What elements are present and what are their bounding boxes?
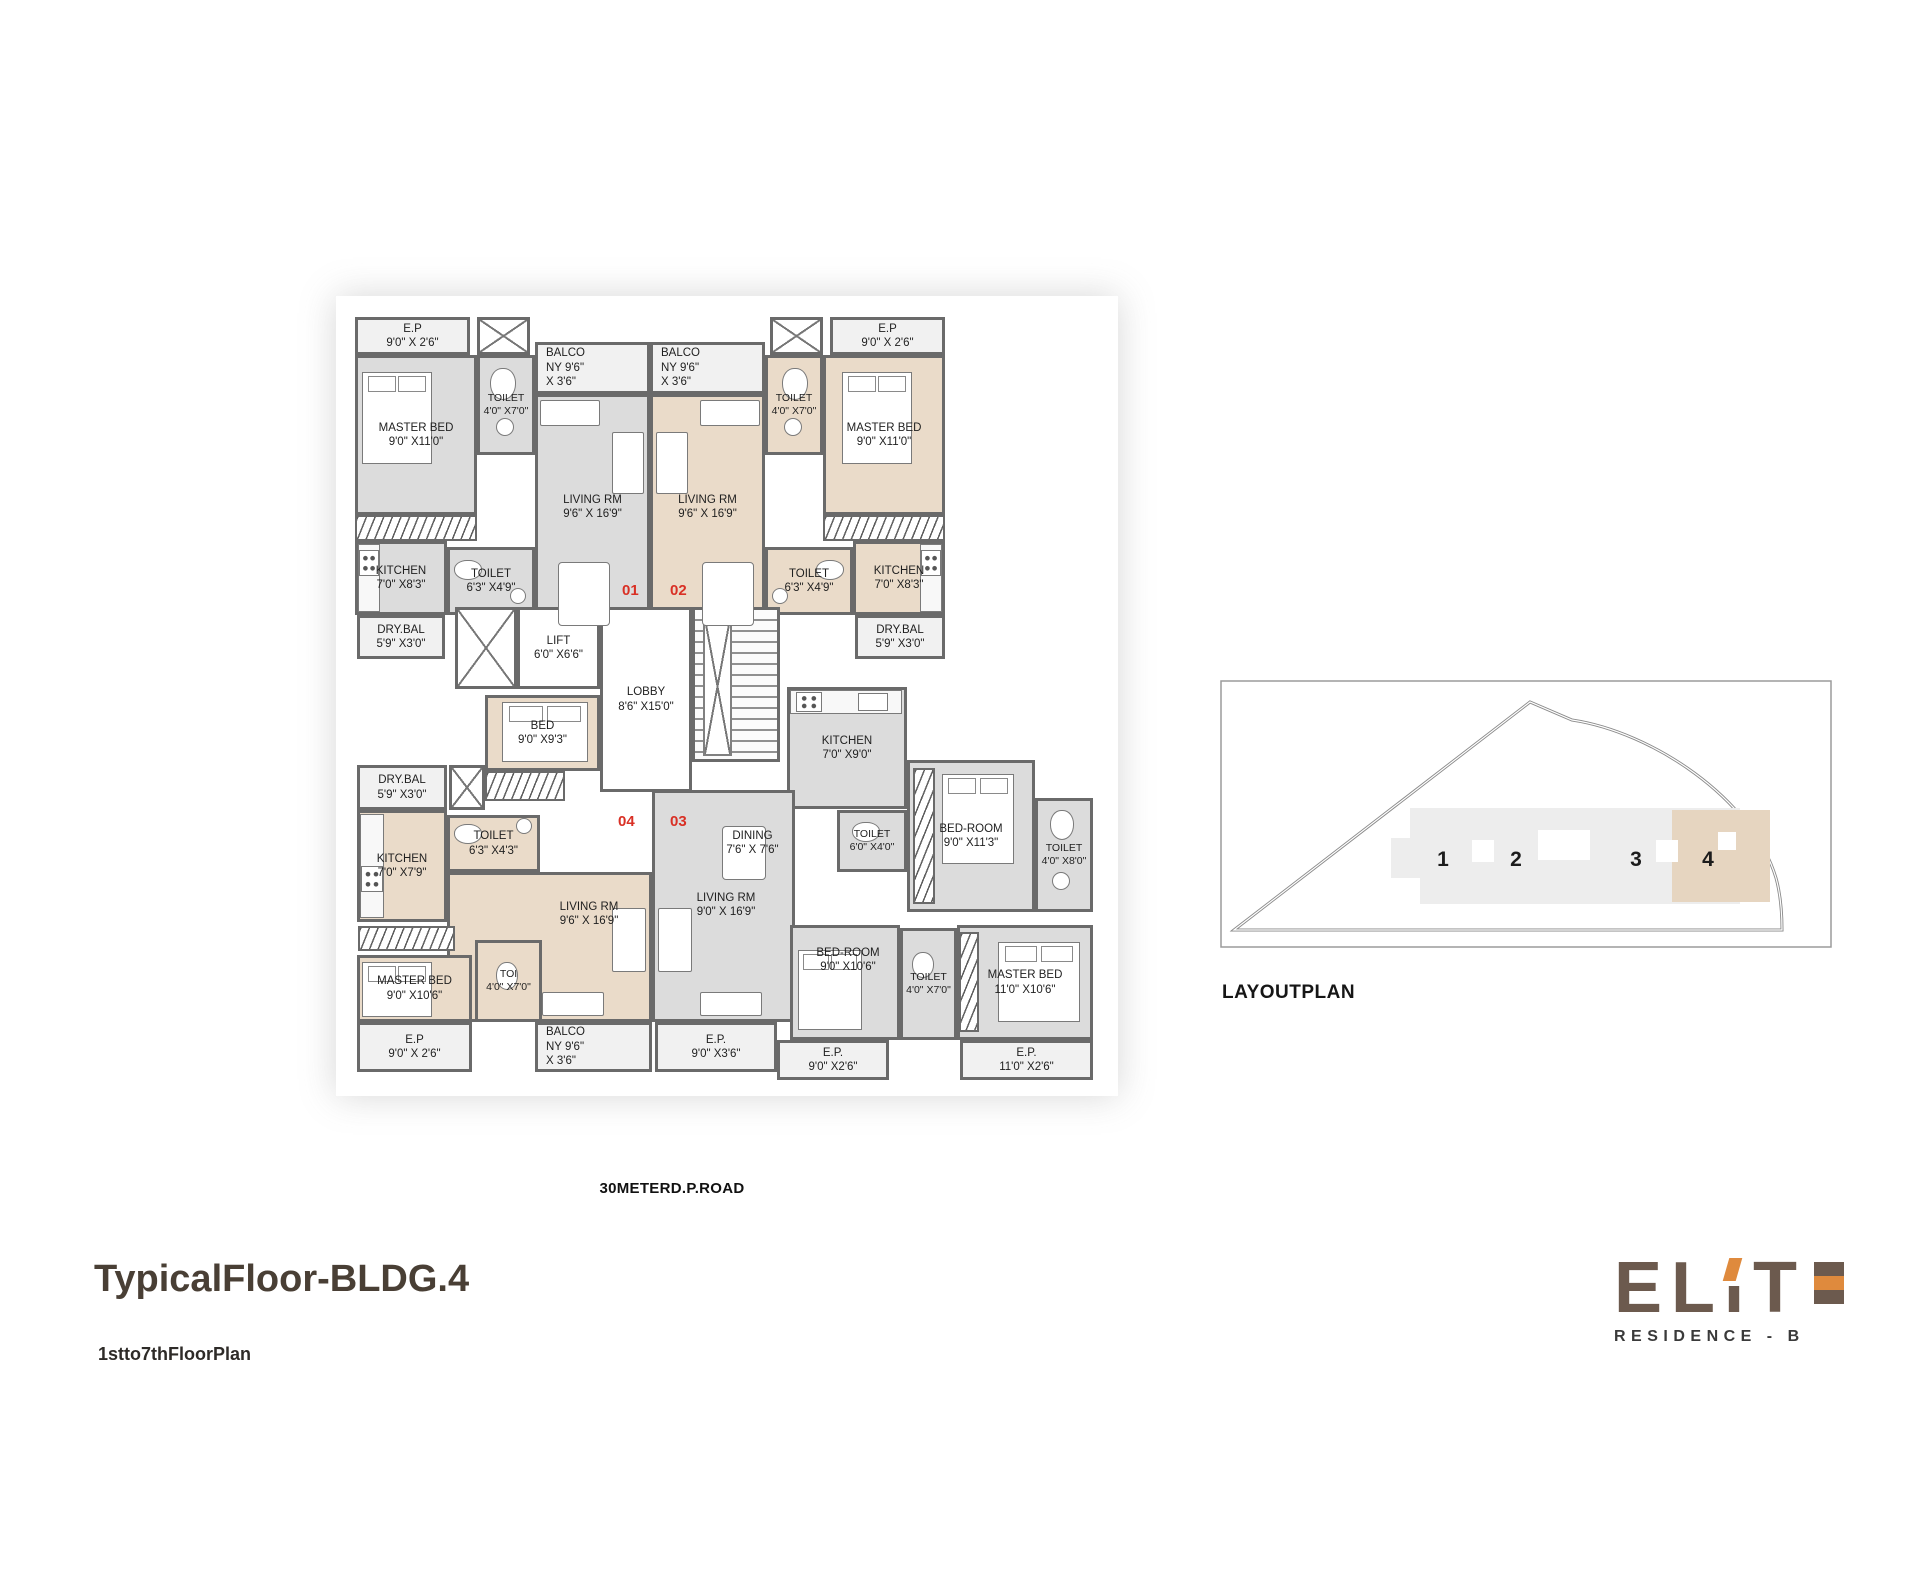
room-dry-bal-01: DRY.BAL5'9" X3'0" <box>357 615 445 659</box>
room-ep-04: E.P9'0" X 2'6" <box>357 1022 472 1072</box>
room-toilet-03-a: TOILET6'0" X4'0" <box>837 810 907 872</box>
unit-number-02: 02 <box>670 582 687 599</box>
logo-letter-i: I <box>1724 1262 1753 1314</box>
room-ep-03-a: E.P.9'0" X3'6" <box>655 1022 777 1072</box>
room-wardrobe-01 <box>355 515 477 541</box>
logo-letter-e: E <box>1614 1262 1671 1314</box>
bed-symbol <box>842 372 912 464</box>
logo-letter-l: L <box>1671 1262 1724 1314</box>
bed-symbol <box>942 774 1014 864</box>
sofa-symbol <box>658 908 692 972</box>
sofa-symbol <box>700 400 760 426</box>
sofa-symbol <box>612 432 644 494</box>
room-balcony-02: BALCONY 9'6"X 3'6" <box>650 342 765 394</box>
elite-logo: E L I T RESIDENCE - B <box>1614 1256 1844 1346</box>
logo-letter-t: T <box>1753 1262 1806 1314</box>
unit-number-03: 03 <box>670 813 687 830</box>
room-shaft-top-left <box>477 317 530 355</box>
logo-residence-text: RESIDENCE - B <box>1614 1328 1844 1346</box>
room-staircase <box>692 607 780 762</box>
wc-symbol <box>1050 810 1074 840</box>
sink-symbol <box>858 693 888 711</box>
room-ep-03-c: E.P.11'0" X2'6" <box>960 1040 1093 1080</box>
room-shaft-mid <box>455 607 517 689</box>
elite-logo-word: E L I T <box>1614 1256 1844 1314</box>
room-toilet-02-b: TOILET6'3" X4'9" <box>765 547 853 615</box>
building-number-4: 4 <box>1702 848 1714 871</box>
room-shaft-top-right <box>770 317 823 355</box>
sofa-symbol <box>540 400 600 426</box>
page-title: TypicalFloor-BLDG.4 <box>94 1258 469 1301</box>
building-number-2: 2 <box>1510 848 1522 871</box>
sofa-symbol <box>656 432 688 494</box>
basin-symbol <box>516 818 532 834</box>
building-4-highlight <box>1672 810 1770 902</box>
room-wardrobe-03-b <box>959 932 979 1032</box>
room-toilet-03-c: TOILET4'0" X7'0" <box>900 928 957 1040</box>
room-wardrobe-04-b <box>358 926 455 951</box>
room-ep-02: E.P9'0" X 2'6" <box>830 317 945 355</box>
road-label: 30METERD.P.ROAD <box>562 1180 782 1197</box>
logo-letter-e-bars-icon <box>1814 1262 1844 1314</box>
layout-plan-inset: 1 2 3 4 <box>1220 680 1832 948</box>
room-dry-bal-02: DRY.BAL5'9" X3'0" <box>855 615 945 659</box>
page-subtitle: 1stto7thFloorPlan <box>98 1344 251 1365</box>
room-balcony-01: BALCONY 9'6"X 3'6" <box>535 342 650 394</box>
table-symbol <box>702 562 754 626</box>
room-balcony-04: BALCONY 9'6"X 3'6" <box>535 1022 652 1072</box>
unit-number-01: 01 <box>622 582 639 599</box>
building-number-3: 3 <box>1630 848 1642 871</box>
basin-symbol <box>784 418 802 436</box>
room-ep-01: E.P9'0" X 2'6" <box>355 317 470 355</box>
bed-symbol <box>362 372 432 464</box>
room-shaft-04 <box>449 765 485 810</box>
room-wardrobe-04-a <box>485 771 565 801</box>
room-dry-bal-04: DRY.BAL5'9" X3'0" <box>357 765 447 810</box>
room-toilet-01-b: TOILET6'3" X4'9" <box>447 547 535 615</box>
table-symbol <box>558 562 610 626</box>
room-wardrobe-03-a <box>913 768 935 904</box>
building-number-1: 1 <box>1437 848 1449 871</box>
basin-symbol <box>496 418 514 436</box>
room-lobby: LOBBY8'6" X15'0" <box>600 607 692 792</box>
floor-plan: E.P9'0" X 2'6"MASTER BED9'0" X11'0"TOILE… <box>350 310 1102 1092</box>
sofa-symbol <box>542 992 604 1016</box>
room-toi-04: TOI4'0" X7'0" <box>475 940 542 1022</box>
stove-symbol <box>796 692 822 712</box>
room-ep-03-b: E.P.9'0" X2'6" <box>777 1040 889 1080</box>
basin-symbol <box>1052 872 1070 890</box>
unit-number-04: 04 <box>618 813 635 830</box>
layout-plan-caption: LAYOUTPLAN <box>1222 982 1355 1004</box>
sofa-symbol <box>700 992 762 1016</box>
room-wardrobe-02 <box>823 515 945 541</box>
